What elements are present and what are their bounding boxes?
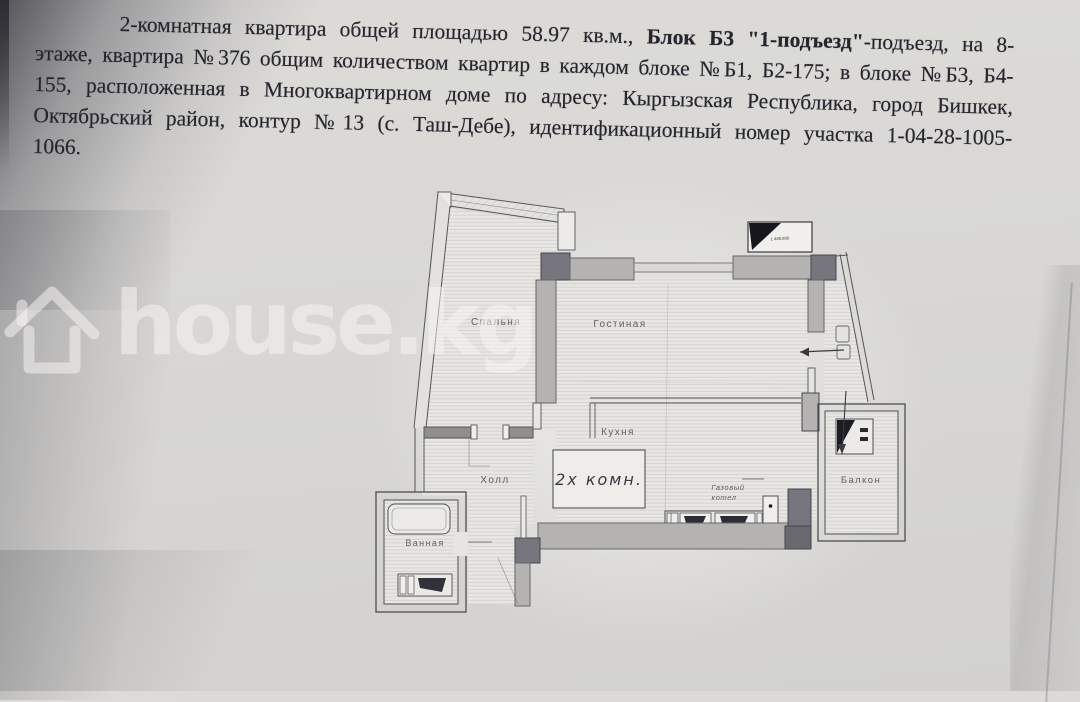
door-jamb (503, 425, 509, 439)
paper-edge-shadow-left (0, 0, 9, 170)
door-tick (860, 428, 868, 432)
document-paragraph: 2-комнатная квартира общей площадью 58.9… (32, 7, 1014, 185)
elevation-marker: 1 480.800 (748, 222, 812, 252)
boiler-dot (769, 504, 773, 508)
elevation-value: 1 480.800 (770, 235, 790, 241)
wall-thin (533, 403, 541, 429)
kitchen-label: Кухня (601, 427, 635, 438)
watermark-text: house.kg (114, 274, 535, 374)
shadow-overlay-bottomleft (0, 550, 420, 691)
wall-horizontal (570, 258, 634, 280)
gas-boiler-label-1: Газовый (711, 483, 744, 492)
door-jamb (521, 496, 526, 538)
line1-bold: Блок Б3 "1-подъезд" (646, 24, 864, 53)
column (785, 526, 811, 549)
wall-vertical (515, 563, 530, 606)
line1-post: -подъезд, на 8- (863, 30, 1014, 58)
balcony-label: Балкон (841, 475, 881, 486)
corridor-fixture (837, 345, 850, 359)
wall-segment (509, 427, 533, 438)
window-jamb (558, 212, 575, 250)
wall-horizontal (538, 523, 788, 549)
living-room-label: Гостиная (593, 319, 646, 330)
column (788, 489, 811, 529)
wall-segment (424, 427, 471, 438)
living-top-walls (570, 255, 836, 280)
bathtub-icon (388, 504, 450, 534)
door-tick (860, 437, 868, 441)
watermark: house.kg (2, 278, 535, 378)
apartment-type-box: 2х комн. (553, 450, 645, 508)
wall-thin (808, 368, 815, 394)
hall-label: Холл (480, 475, 509, 486)
wall-horizontal (733, 256, 811, 279)
wall-vertical (536, 280, 556, 403)
corridor-fixture (836, 326, 849, 342)
house-icon (2, 278, 102, 378)
gas-boiler-label-2: котел (711, 493, 736, 502)
wall-vertical (808, 280, 824, 332)
column (541, 253, 570, 280)
column (515, 538, 540, 563)
column (802, 393, 819, 431)
bathroom-label: Ванная (405, 538, 444, 548)
bathroom-door-gap (454, 532, 468, 556)
column (811, 255, 836, 280)
door-jamb (471, 425, 477, 439)
apartment-type-label: 2х комн. (555, 470, 643, 489)
floor-plan: 1 480.800 2х комн. (368, 176, 920, 646)
window-band (634, 263, 733, 272)
